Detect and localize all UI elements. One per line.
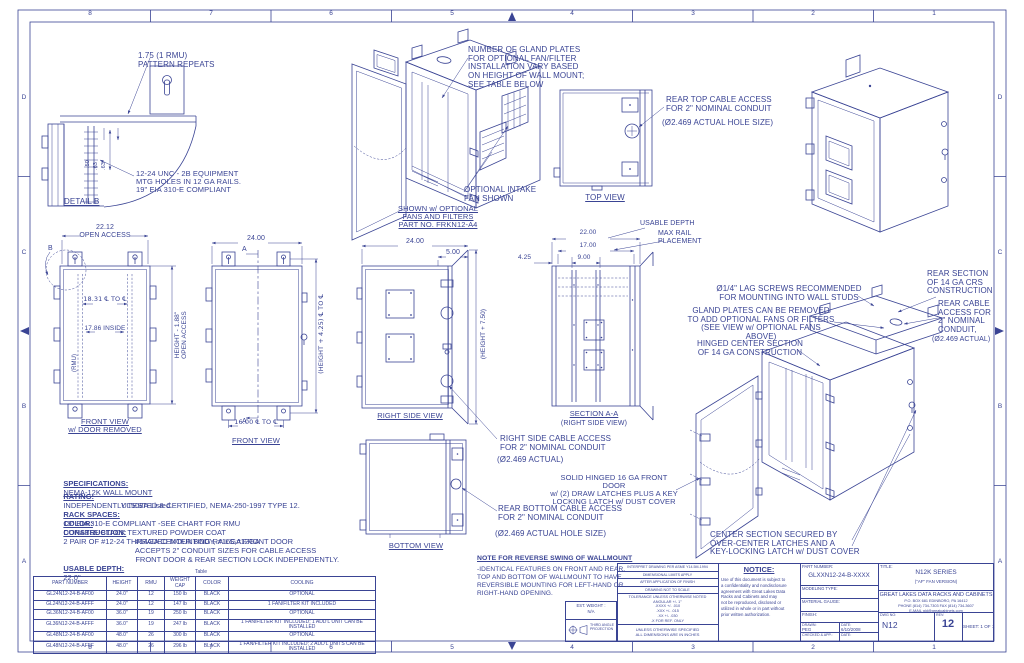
front-open-inside-dim: 17.86 INSIDE — [70, 325, 140, 332]
rear-top-cable-callout: REAR TOP CABLE ACCESS FOR 2" NOMINAL CON… — [666, 96, 772, 113]
finish-label: FINISH: — [802, 612, 817, 618]
right-view-label: RIGHT SIDE VIEW — [368, 412, 452, 420]
cell: 150 lb — [165, 591, 196, 601]
cell: GL36N12-24-B-AFFF — [34, 619, 107, 632]
drawing-sheet: 8 7 6 5 4 3 2 1 8 7 6 5 4 3 2 1 D C B A … — [0, 0, 1024, 663]
spec-construction-value4: FRONT DOOR & REAR SECTION LOCK INDEPENDE… — [135, 555, 339, 564]
zone-left-c: C — [19, 249, 29, 256]
hinged-center-callout: HINGED CENTER SECTION OF 14 GA CONSTRUCT… — [692, 340, 808, 357]
top-view-label: TOP VIEW — [570, 194, 640, 203]
series-title: N12K SERIES — [878, 569, 994, 578]
section-aa-label: SECTION A-A — [552, 410, 636, 418]
zone-top-8: 8 — [85, 10, 95, 17]
cell: 24.0" — [107, 600, 138, 610]
zone-top-4: 4 — [567, 10, 577, 17]
cell: BLACK — [196, 632, 229, 642]
right-side-cable-size: (Ø2.469 ACTUAL) — [497, 456, 563, 465]
detail-b-holes-callout: 12-24 UNC - 2B EQUIPMENT MTG HOLES IN 12… — [136, 170, 241, 194]
zone-top-7: 7 — [206, 10, 216, 17]
rear-bottom-cable-size: (Ø2.469 ACTUAL HOLE SIZE) — [495, 530, 606, 539]
front-open-label: FRONT VIEW w/ DOOR REMOVED — [60, 418, 150, 434]
gland-removable-callout: GLAND PLATES CAN BE REMOVED TO ADD OPTIO… — [686, 307, 836, 342]
zone-right-b: B — [995, 403, 1005, 410]
table-row: GL48N12-24-B-AFFF48.0"26296 lbBLACK1 FAN… — [34, 641, 376, 654]
cell: GL24N12-24-B-AFFF — [34, 600, 107, 610]
cell: 26 — [138, 632, 165, 642]
units-note: UNLESS OTHERWISE SPECIFIED ALL DIMENSION… — [618, 627, 717, 638]
zone-bottom-5: 5 — [447, 644, 457, 651]
interpret-note-2: DIMENSIONAL LIMITS APPLY — [618, 573, 717, 578]
section-aa-sublabel: (RIGHT SIDE VIEW) — [552, 420, 636, 428]
zone-top-6: 6 — [326, 10, 336, 17]
zone-bottom-4: 4 — [567, 644, 577, 651]
front-open-width-dim: 22.12 OPEN ACCESS — [70, 224, 140, 239]
cell: 1 FAN/FILTER KIT INCLUDED; 1 ADD'L UNIT … — [229, 619, 376, 632]
section-dim-425: 4.25 — [518, 254, 531, 261]
table-row: GL36N12-24-B-AFFF36.0"19247 lbBLACK1 FAN… — [34, 619, 376, 632]
front-open-height-dim: HEIGHT - 1.88" OPEN ACCESS — [174, 296, 188, 374]
cell: BLACK — [196, 591, 229, 601]
right-view-height-dim: (HEIGHT + 7.50) — [480, 274, 487, 394]
bottom-view-drawing — [360, 434, 497, 538]
usable-depth-callout: USABLE DEPTH — [640, 220, 695, 228]
front-open-rmu-dim: (RMU) — [72, 354, 78, 372]
col-weight-cap: WEIGHT CAP — [165, 577, 196, 591]
zone-right-c: C — [995, 249, 1005, 256]
series-subtitle: ("AF" FAN VERSION) — [878, 579, 994, 585]
title-block-divider — [718, 563, 719, 642]
cell: 26 — [138, 641, 165, 654]
cell: 48.0" — [107, 632, 138, 642]
zone-right-d: D — [995, 94, 1005, 101]
cell: BLACK — [196, 619, 229, 632]
detail-b-dim-63b: .63 — [102, 162, 108, 170]
part-table-header-row: PART NUMBER HEIGHT RMU WEIGHT CAP COLOR … — [34, 577, 376, 591]
interpret-note-1: INTERPRET DRAWING PER ASME Y14.5M-1994 — [618, 565, 717, 570]
gland-plates-callout: NUMBER OF GLAND PLATES FOR OPTIONAL FAN/… — [468, 46, 584, 89]
cell: OPTIONAL — [229, 632, 376, 642]
part-table: PART NUMBER HEIGHT RMU WEIGHT CAP COLOR … — [33, 576, 376, 654]
part-number-label: PART NUMBER: — [802, 564, 833, 570]
zone-bottom-3: 3 — [688, 644, 698, 651]
right-view-offset-dim: 5.00 — [436, 249, 470, 257]
col-height: HEIGHT — [107, 577, 138, 591]
modeling-type-label: MODELING TYPE: — [802, 586, 838, 592]
cell: BLACK — [196, 600, 229, 610]
detail-b-dim-63a: .63 — [94, 162, 100, 170]
company-address: P.O. BOX 681 EDINBORO, PA 16412 PHONE (8… — [878, 599, 994, 614]
zone-top-2: 2 — [808, 10, 818, 17]
rear-cable-size: (Ø2.469 ACTUAL) — [932, 336, 990, 344]
zone-left-d: D — [19, 94, 29, 101]
right-view-width-dim: 24.00 — [385, 238, 445, 246]
section-dim-9: 9.00 — [566, 254, 602, 261]
zone-left-a: A — [19, 558, 29, 565]
table-row: GL24N12-24-B-AF0024.0"12150 lbBLACKOPTIO… — [34, 591, 376, 601]
cell: 1 FAN/FILTER KIT INCLUDED — [229, 600, 376, 610]
material-gauge-label: MATERIAL GAUGE: — [802, 599, 840, 605]
front-view-drawing — [206, 243, 318, 428]
bottom-view-label: BOTTOM VIEW — [380, 542, 452, 550]
cell: 1 FAN/FILTER KIT INCLUDED; 2 ADD'L UNITS… — [229, 641, 376, 654]
cell: GL48N12-24-B-AFFF — [34, 641, 107, 654]
cell: 36.0" — [107, 619, 138, 632]
right-side-cable-callout: RIGHT SIDE CABLE ACCESS FOR 2" NOMINAL C… — [500, 435, 611, 452]
detail-b-pattern-callout: 1.75 (1 RMU) PATTERN REPEATS — [138, 52, 215, 69]
cell: 250 lb — [165, 610, 196, 620]
part-table-caption: Table — [33, 569, 369, 576]
front-view-ctc-dim: 16.00 ℄ TO ℄ — [226, 419, 286, 426]
cell: BLACK — [196, 641, 229, 654]
checked-date-label: DATE: — [841, 633, 851, 638]
section-dim-17: 17.00 — [568, 242, 608, 249]
cell: 48.0" — [107, 641, 138, 654]
table-row: GL36N12-24-B-AF0036.0"19250 lbBLACKOPTIO… — [34, 610, 376, 620]
checked-label: CHECKED & APP.: — [802, 633, 833, 638]
notice-body: Use of this document is subject to a con… — [721, 577, 797, 618]
reverse-swing-note-title: NOTE FOR REVERSE SWING OF WALLMOUNT — [477, 555, 632, 562]
section-marker-a-top: A — [242, 246, 247, 254]
cell: BLACK — [196, 610, 229, 620]
cell: 247 lb — [165, 619, 196, 632]
cell: 296 lb — [165, 641, 196, 654]
reverse-swing-note-body: -IDENTICAL FEATURES ON FRONT AND REAR, T… — [477, 566, 625, 599]
iso-rear-drawing — [806, 55, 948, 232]
zone-top-5: 5 — [447, 10, 457, 17]
col-part-number: PART NUMBER — [34, 577, 107, 591]
col-color: COLOR — [196, 577, 229, 591]
cell: GL36N12-24-B-AF00 — [34, 610, 107, 620]
zone-bottom-1: 1 — [929, 644, 939, 651]
col-rmu: RMU — [138, 577, 165, 591]
projection-label: THIRD ANGLE PROJECTION — [590, 623, 617, 633]
est-weight-value: EST. WEIGHT : N/A — [566, 603, 616, 614]
cell: GL24N12-24-B-AF00 — [34, 591, 107, 601]
cell: OPTIONAL — [229, 591, 376, 601]
cell: OPTIONAL — [229, 610, 376, 620]
front-view-width-dim: 24.00 — [224, 235, 288, 243]
intake-fan-callout: OPTIONAL INTAKE FAN SHOWN — [464, 186, 536, 203]
notice-title: NOTICE: — [720, 565, 798, 575]
cell: 147 lb — [165, 600, 196, 610]
part-number-value: GLXXN12-24-B-XXXX — [800, 572, 878, 580]
cell: 36.0" — [107, 610, 138, 620]
dwg-no-value: N12 — [882, 620, 898, 631]
section-dim-22: 22.00 — [568, 229, 608, 236]
zone-bottom-2: 2 — [808, 644, 818, 651]
interpret-note-3: AFTER APPLICATION OF FINISH — [618, 580, 717, 585]
cell: 19 — [138, 619, 165, 632]
sheet-value: SHEET: 1 OF 1 — [963, 624, 994, 630]
rear-top-cable-size: (Ø2.469 ACTUAL HOLE SIZE) — [662, 119, 773, 128]
cell: 12 — [138, 600, 165, 610]
front-view-label: FRONT VIEW — [226, 437, 286, 445]
cell: 12 — [138, 591, 165, 601]
front-open-ctc-dim: 18.31 ℄ TO ℄ — [70, 296, 140, 303]
rear-section-callout: REAR SECTION OF 14 GA CRS CONSTRUCTION — [927, 270, 993, 296]
lag-screws-callout: Ø1/4" LAG SCREWS RECOMMENDED FOR MOUNTIN… — [714, 285, 864, 302]
iso-front-caption: SHOWN w/ OPTIONAL FANS AND FILTERS PART … — [386, 205, 490, 229]
cell: 19 — [138, 610, 165, 620]
detail-b-dim-50: .50 — [86, 160, 92, 168]
rev-value: 12 — [934, 617, 962, 632]
interpret-note-4: DRAWING NOT TO SCALE — [618, 588, 717, 593]
rear-bottom-cable-callout: REAR BOTTOM CABLE ACCESS FOR 2" NOMINAL … — [498, 505, 622, 522]
zone-top-1: 1 — [929, 10, 939, 17]
detail-b-label: DETAIL B — [64, 198, 99, 207]
cell: GL48N12-24-B-AF00 — [34, 632, 107, 642]
cell: 300 lb — [165, 632, 196, 642]
center-section-callout: CENTER SECTION SECURED BY OVER-CENTER LA… — [710, 531, 860, 557]
zone-right-a: A — [995, 558, 1005, 565]
dwg-no-label: DWG NO: — [880, 613, 896, 618]
front-open-detail-ref: B — [48, 245, 53, 253]
cell: 24.0" — [107, 591, 138, 601]
third-angle-projection-icon — [568, 624, 588, 636]
front-view-height-dim: (HEIGHT + 4.25) ℄ TO ℄ — [318, 268, 325, 400]
zone-left-b: B — [19, 403, 29, 410]
zone-top-3: 3 — [688, 10, 698, 17]
rear-cable-callout: REAR CABLE ACCESS FOR 2" NOMINAL CONDUIT… — [938, 300, 991, 335]
col-cooling: COOLING — [229, 577, 376, 591]
top-view-drawing — [554, 90, 664, 190]
max-rail-callout: MAX RAIL PLACEMENT — [658, 230, 702, 245]
front-door-callout: SOLID HINGED 16 GA FRONT DOOR w/ (2) DRA… — [550, 474, 678, 506]
table-row: GL48N12-24-B-AF0048.0"26300 lbBLACKOPTIO… — [34, 632, 376, 642]
table-row: GL24N12-24-B-AFFF24.0"12147 lbBLACK1 FAN… — [34, 600, 376, 610]
tolerance-note: TOLERANCE UNLESS OTHERWISE NOTED ANGULAR… — [618, 595, 717, 623]
